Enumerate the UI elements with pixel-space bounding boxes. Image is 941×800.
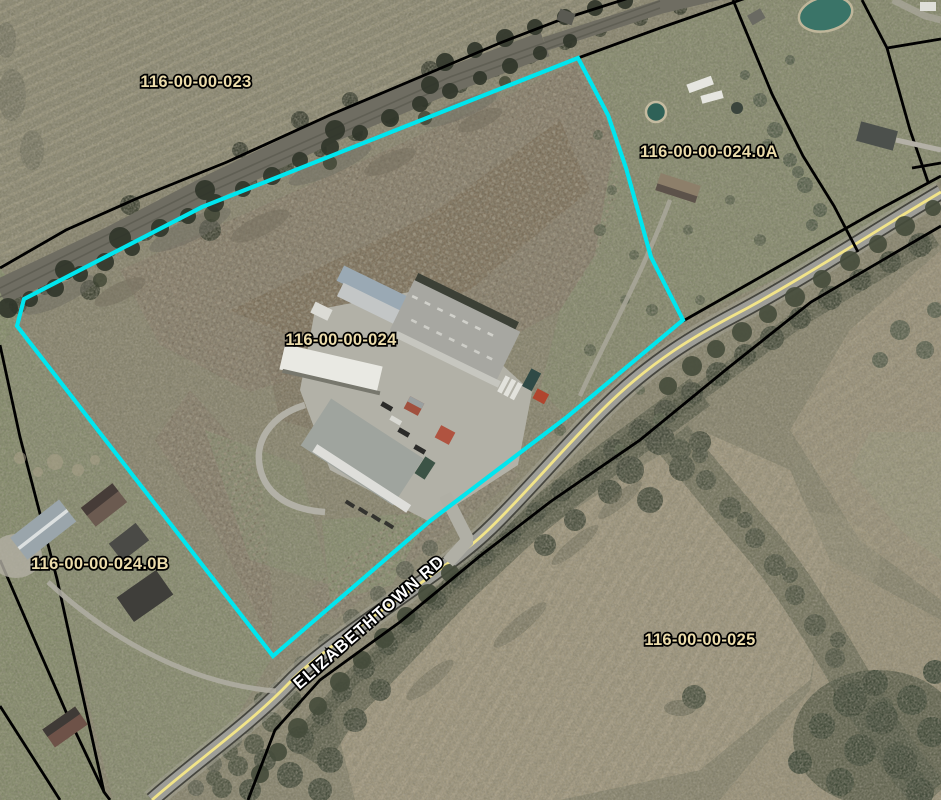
svg-text:116-00-00-024.0A: 116-00-00-024.0A [640,143,778,161]
svg-text:116-00-00-025: 116-00-00-025 [644,631,755,649]
svg-text:116-00-00-024.0B: 116-00-00-024.0B [31,555,169,573]
svg-text:116-00-00-023: 116-00-00-023 [140,73,251,91]
svg-text:116-00-00-024: 116-00-00-024 [285,331,397,349]
